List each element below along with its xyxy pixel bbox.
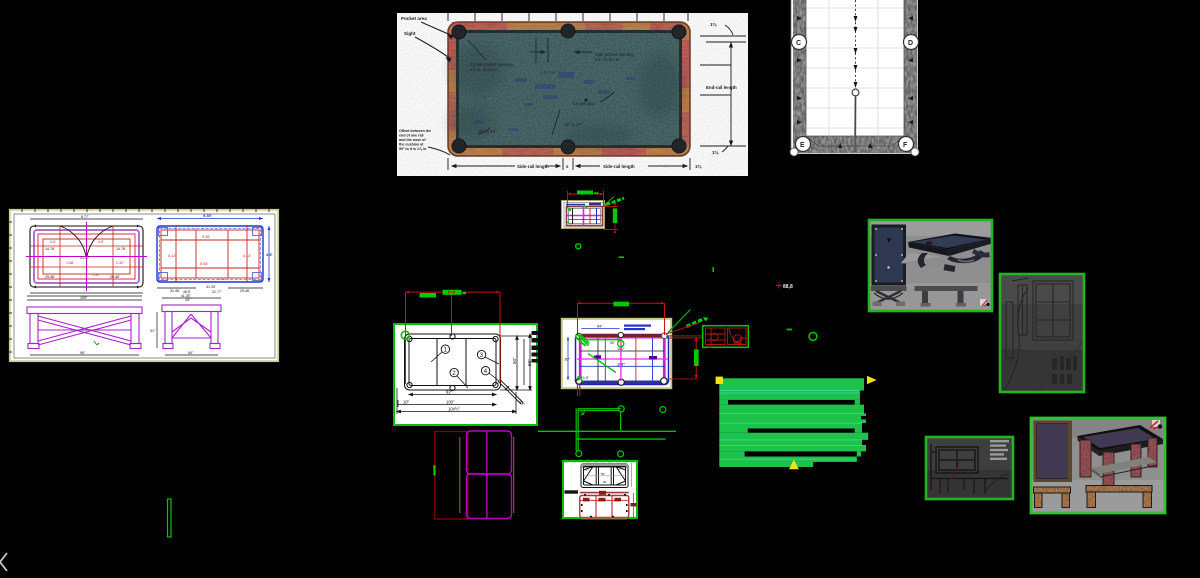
svg-text:14.76': 14.76' <box>116 247 126 251</box>
svg-text:9.35': 9.35' <box>202 235 210 239</box>
svg-text:1": 1" <box>586 468 589 472</box>
svg-text:E: E <box>800 142 805 149</box>
svg-text:54": 54" <box>597 325 603 329</box>
svg-text:31": 31" <box>150 329 156 333</box>
svg-text:4.5': 4.5' <box>98 240 104 244</box>
svg-text:50": 50" <box>565 358 571 362</box>
svg-text:1.5": 1.5" <box>583 376 590 380</box>
svg-text:D: D <box>908 40 913 47</box>
svg-text:30: 30 <box>603 480 607 484</box>
svg-text:41.35': 41.35' <box>206 285 216 289</box>
svg-text:1.68': 1.68' <box>66 261 74 265</box>
svg-text:104½": 104½" <box>448 407 460 412</box>
svg-text:F: F <box>903 142 908 149</box>
svg-text:50": 50" <box>610 341 616 345</box>
svg-text:1.32': 1.32' <box>92 273 100 277</box>
svg-text:C: C <box>796 40 801 47</box>
svg-text:56": 56" <box>601 472 605 476</box>
svg-text:100": 100" <box>446 400 455 405</box>
svg-text:14.76': 14.76' <box>45 247 55 251</box>
svg-text:4.5': 4.5' <box>266 252 273 257</box>
svg-text:31.77': 31.77' <box>212 290 222 294</box>
svg-text:88,8: 88,8 <box>783 284 793 290</box>
svg-text:31.46': 31.46' <box>170 289 180 293</box>
svg-text:58": 58" <box>527 359 532 366</box>
svg-text:8.77': 8.77' <box>81 215 89 219</box>
svg-text:4.12': 4.12' <box>243 254 251 258</box>
svg-text:1.72': 1.72' <box>218 277 226 281</box>
svg-text:50": 50" <box>512 357 517 364</box>
svg-text:29.46': 29.46' <box>240 289 250 293</box>
svg-text:29.46': 29.46' <box>110 275 120 279</box>
svg-text:4.12': 4.12' <box>168 254 176 258</box>
svg-text:1": 1" <box>618 468 621 472</box>
svg-text:31.77': 31.77' <box>80 256 90 260</box>
svg-text:96": 96" <box>80 351 86 355</box>
svg-text:54": 54" <box>188 351 194 355</box>
svg-text:9.35': 9.35' <box>203 213 212 218</box>
svg-text:4.5': 4.5' <box>50 240 56 244</box>
svg-text:109": 109" <box>80 296 88 300</box>
svg-text:29.46': 29.46' <box>45 275 55 279</box>
svg-text:44": 44" <box>185 298 191 302</box>
svg-text:64: 64 <box>708 345 712 349</box>
svg-text:10": 10" <box>403 400 410 405</box>
svg-text:92": 92" <box>446 389 453 394</box>
svg-text:5.08': 5.08' <box>200 262 208 266</box>
svg-text:1.32': 1.32' <box>116 261 124 265</box>
